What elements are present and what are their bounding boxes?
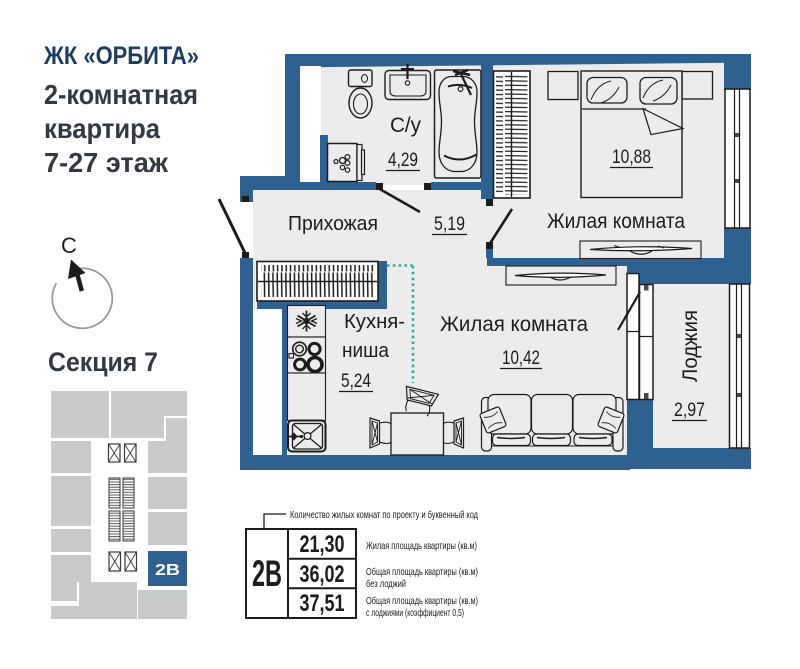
svg-text:Прихожая: Прихожая [288, 213, 378, 235]
svg-text:4,29: 4,29 [388, 150, 418, 171]
svg-text:Жилая комната: Жилая комната [440, 313, 588, 336]
svg-text:7-27 этаж: 7-27 этаж [44, 147, 169, 178]
svg-text:Секция 7: Секция 7 [48, 347, 158, 377]
svg-text:5,19: 5,19 [434, 214, 465, 235]
svg-text:37,51: 37,51 [300, 590, 345, 617]
svg-text:квартира: квартира [44, 113, 160, 144]
svg-text:с лоджиями (коэффициент 0,5): с лоджиями (коэффициент 0,5) [366, 607, 464, 619]
svg-text:ЖК «ОРБИТА»: ЖК «ОРБИТА» [43, 42, 199, 70]
svg-text:Общая площадь квартиры (кв.м): Общая площадь квартиры (кв.м) [366, 566, 478, 578]
svg-text:Количество жилых комнат по про: Количество жилых комнат по проекту и бук… [290, 509, 478, 521]
svg-text:36,02: 36,02 [300, 561, 345, 588]
svg-text:Жилая комната: Жилая комната [547, 210, 685, 233]
svg-text:Общая площадь квартиры (кв.м): Общая площадь квартиры (кв.м) [366, 595, 478, 607]
svg-text:С/у: С/у [390, 114, 421, 137]
svg-text:10,88: 10,88 [612, 147, 651, 168]
svg-text:ниша: ниша [342, 340, 390, 362]
svg-text:2В: 2В [155, 562, 180, 579]
svg-text:2-комнатная: 2-комнатная [44, 79, 198, 110]
svg-text:Жилая площадь квартиры (кв.м): Жилая площадь квартиры (кв.м) [366, 540, 477, 552]
svg-text:21,30: 21,30 [300, 531, 345, 558]
svg-text:5,24: 5,24 [341, 371, 371, 392]
svg-text:без лоджий: без лоджий [366, 578, 406, 590]
svg-text:С: С [61, 233, 77, 258]
svg-text:Лоджия: Лоджия [679, 310, 702, 382]
svg-text:2В: 2В [252, 553, 282, 594]
svg-text:Кухня-: Кухня- [344, 311, 405, 333]
svg-text:2,97: 2,97 [674, 400, 705, 421]
svg-text:10,42: 10,42 [502, 348, 540, 369]
